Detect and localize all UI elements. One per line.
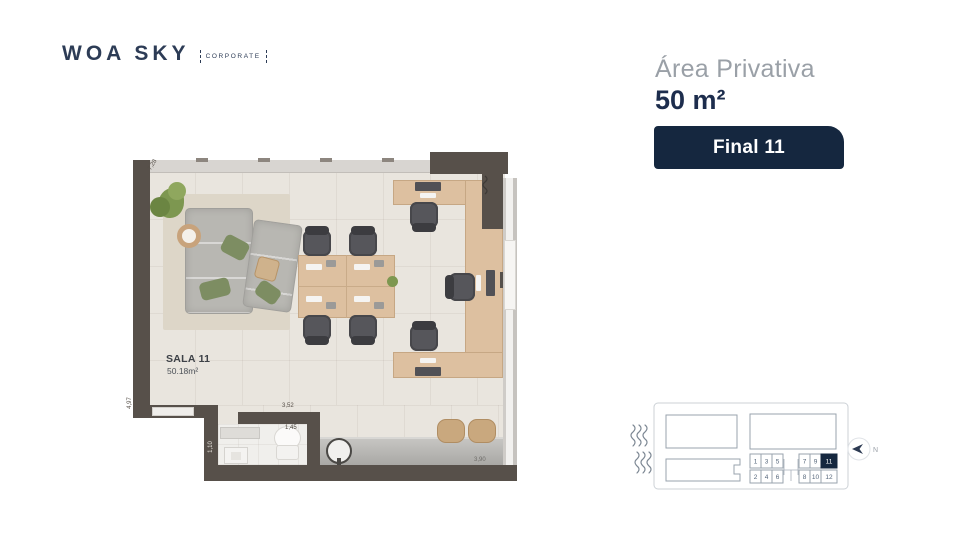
dim-bath-width: 1,45 — [285, 425, 297, 431]
keyboard — [420, 193, 436, 198]
entry-door — [504, 240, 516, 310]
keyboard — [476, 275, 481, 291]
keyplan-block-top-right — [750, 414, 836, 449]
private-area-label: Área Privativa — [655, 55, 815, 84]
bathroom-sink — [224, 447, 248, 464]
keyplan-unit-4-label: 4 — [765, 474, 769, 481]
door-handle — [500, 272, 503, 288]
desk-divider — [298, 286, 395, 287]
keyplan-unit-1-label: 1 — [754, 459, 758, 466]
brand-corporate-tag: CORPORATE — [200, 50, 267, 63]
wall-opening — [152, 407, 194, 416]
side-table — [177, 224, 201, 248]
laptop — [326, 302, 336, 309]
office-chair — [349, 230, 377, 256]
floor-plan: SALA 11 50.18m² 4,97 7,28 3,52 1,45 1,10… — [130, 148, 522, 484]
keyboard — [306, 296, 322, 302]
private-area-value: 50 m² — [655, 85, 726, 116]
monitor — [415, 182, 441, 191]
keyplan-unit-10-label: 10 — [812, 474, 820, 481]
office-chair — [303, 315, 331, 341]
u-desk-bottom — [393, 352, 503, 378]
stool — [468, 419, 496, 443]
keyplan-unit-5-label: 5 — [776, 459, 780, 466]
unit-final-badge: Final 11 — [654, 126, 844, 169]
keyplan-unit-8-label: 8 — [803, 474, 807, 481]
facade-mullion — [382, 158, 394, 162]
room-area-label: 50.18m² — [167, 366, 198, 376]
laptop — [374, 260, 384, 267]
laptop — [374, 302, 384, 309]
keyplan-unit-2-label: 2 — [754, 474, 758, 481]
office-chair — [349, 315, 377, 341]
keyplan-block-top-left — [666, 415, 737, 448]
brand-logo: WOA SKY CORPORATE — [62, 42, 267, 66]
facade-mullion — [258, 158, 270, 162]
dim-bath-depth: 1,10 — [208, 441, 214, 453]
office-chair — [410, 325, 438, 351]
brochure-page: WOA SKY CORPORATE Área Privativa 50 m² F… — [0, 0, 960, 540]
toilet — [274, 426, 302, 462]
wall-bathroom-right — [307, 412, 320, 468]
keyboard — [306, 264, 322, 270]
monitor — [486, 270, 495, 296]
monitor — [415, 367, 441, 376]
facade-mullion — [320, 158, 332, 162]
bathroom-sink-basin — [231, 452, 241, 460]
wall-left — [133, 160, 150, 418]
keyplan-block-bottom-left — [666, 459, 740, 481]
dim-left-wall: 4,97 — [127, 397, 133, 409]
wall-bottom — [204, 465, 517, 481]
office-chair — [410, 202, 438, 228]
keyboard — [420, 358, 436, 363]
keyboard — [354, 296, 370, 302]
stool — [437, 419, 465, 443]
hinge-marks-icon — [480, 175, 490, 197]
room-name-label: SALA 11 — [166, 353, 210, 365]
desk-plant — [387, 276, 398, 287]
office-chair — [303, 230, 331, 256]
keyplan-unit-12-label: 12 — [825, 474, 833, 481]
keyplan-unit-11-label: 11 — [826, 459, 833, 466]
office-chair — [449, 273, 475, 301]
bathroom-cabinet — [220, 427, 260, 439]
toilet-tank — [276, 445, 299, 460]
keyplan-unit-7-label: 7 — [803, 459, 807, 466]
facade-mullion — [196, 158, 208, 162]
counter-sink — [326, 438, 352, 464]
laptop — [326, 260, 336, 267]
keyboard — [354, 264, 370, 270]
keyplan-unit-9-label: 9 — [814, 459, 818, 466]
unit-final-badge-label: Final 11 — [713, 137, 785, 159]
keyplan: 1 3 5 7 9 11 2 4 6 8 10 12 — [653, 402, 849, 490]
north-indicator: N — [845, 435, 881, 463]
dim-counter-width: 3,90 — [474, 457, 486, 463]
brand-name: WOA SKY — [62, 42, 190, 66]
keyplan-unit-6-label: 6 — [776, 474, 780, 481]
wall-top-right — [430, 152, 508, 174]
keyplan-unit-3-label: 3 — [765, 459, 769, 466]
partition-right — [503, 178, 517, 465]
north-label: N — [873, 447, 878, 454]
dim-hall-width: 3,52 — [282, 403, 294, 409]
